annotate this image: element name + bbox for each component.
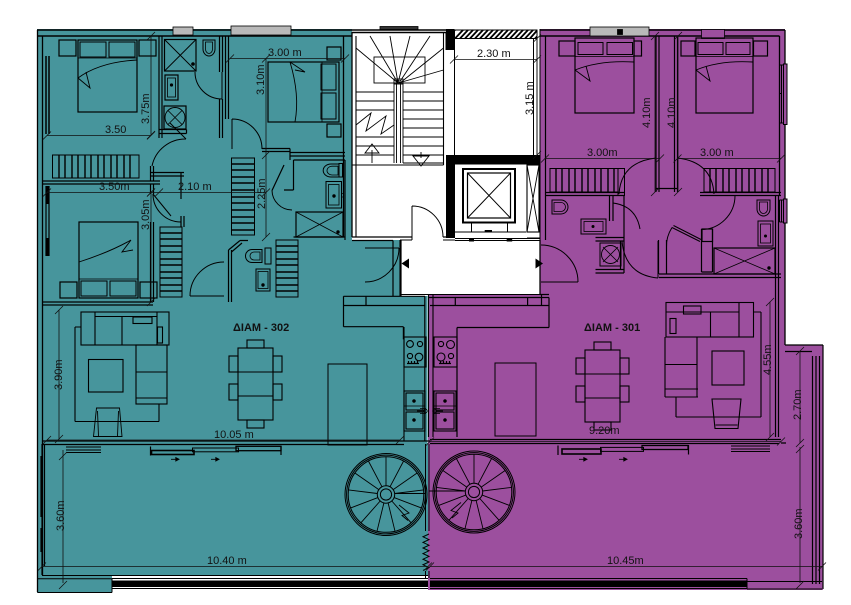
svg-text:ΔIAM - 302: ΔIAM - 302 [233,322,289,334]
svg-text:3.00 m: 3.00 m [268,47,302,59]
svg-text:4.10m: 4.10m [666,97,678,128]
svg-text:ΔIAM - 301: ΔIAM - 301 [584,322,640,334]
svg-text:2.30 m: 2.30 m [477,48,511,60]
svg-text:4.10m: 4.10m [641,97,653,128]
svg-text:10.05 m: 10.05 m [214,429,254,441]
svg-text:9.20m: 9.20m [589,425,620,437]
svg-text:2.70m: 2.70m [792,389,804,420]
svg-text:3.90m: 3.90m [53,359,65,390]
svg-text:3.50m: 3.50m [99,181,130,193]
svg-text:3.15 m: 3.15 m [524,81,536,115]
svg-text:3.50: 3.50 [105,124,126,136]
svg-text:2.10 m: 2.10 m [178,181,212,193]
svg-text:4.55m: 4.55m [762,344,774,375]
svg-text:3.60m: 3.60m [793,508,805,539]
svg-text:3.05m: 3.05m [140,199,152,230]
svg-text:2.25m: 2.25m [256,178,268,209]
svg-text:3.00 m: 3.00 m [700,147,734,159]
svg-text:3.10m: 3.10m [255,64,267,95]
svg-text:10.40 m: 10.40 m [207,555,247,567]
svg-text:10.45m: 10.45m [607,555,644,567]
svg-text:3.75m: 3.75m [140,93,152,124]
svg-text:3.00m: 3.00m [587,147,618,159]
svg-text:3.60m: 3.60m [55,500,67,531]
